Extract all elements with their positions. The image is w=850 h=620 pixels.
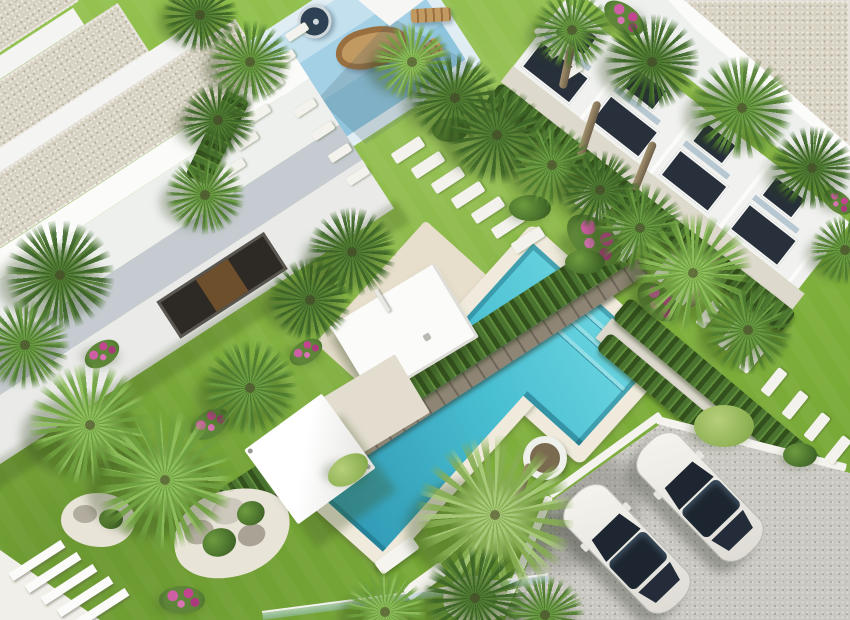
palm-tree	[202, 340, 298, 436]
palm-crown-center	[55, 270, 65, 280]
palm-crown-center	[688, 268, 698, 278]
palm-crown-center	[20, 340, 30, 350]
shrub	[694, 405, 754, 447]
palm-crown-center	[470, 593, 480, 603]
palm-tree	[703, 285, 793, 375]
palm-crown-center	[547, 160, 557, 170]
bougainvillea-bush	[159, 586, 205, 614]
palm-tree	[165, 155, 245, 235]
palm-crown-center	[737, 103, 747, 113]
palm-crown-center	[840, 245, 850, 255]
aerial-render-scene	[0, 0, 850, 620]
palm-crown-center	[540, 610, 550, 620]
vegetation-layer	[0, 0, 850, 620]
palm-crown-center	[245, 383, 255, 393]
palm-crown-center	[743, 325, 753, 335]
palm-crown-center	[380, 607, 390, 617]
palm-crown-center	[647, 57, 657, 67]
palm-crown-center	[213, 115, 223, 125]
palm-crown-center	[195, 10, 205, 20]
palm-tree	[343, 570, 427, 620]
palm-crown-center	[347, 247, 357, 257]
shrub	[322, 446, 374, 493]
palm-tree	[180, 82, 256, 158]
palm-canopy	[757, 113, 850, 222]
palm-crown-center	[85, 420, 95, 430]
palm-crown-center	[490, 510, 500, 520]
palm-tree	[810, 215, 850, 285]
palm-crown-center	[160, 475, 170, 485]
palm-crown-center	[245, 57, 255, 67]
palm-crown-center	[567, 25, 577, 35]
shrub	[783, 443, 817, 467]
palm-tree	[505, 575, 585, 620]
palm-crown-center	[492, 130, 502, 140]
palm-tree	[770, 126, 850, 210]
palm-crown-center	[200, 190, 210, 200]
palm-tree	[604, 14, 700, 110]
palm-tree	[307, 207, 397, 297]
palm-crown-center	[807, 163, 817, 173]
